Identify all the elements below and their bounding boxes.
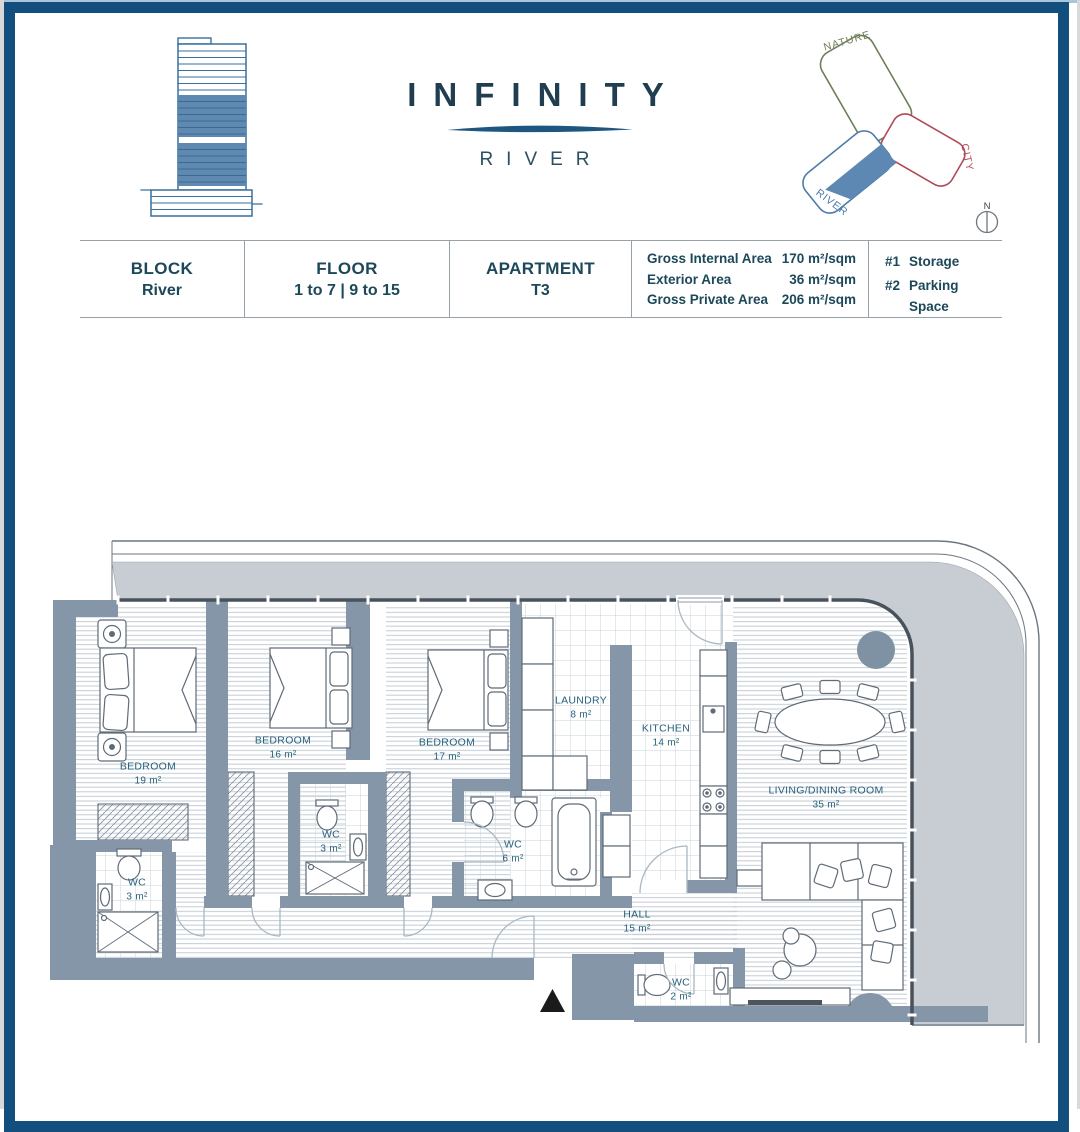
area-value: 206 m²/sqm: [782, 290, 856, 310]
apartment-cell: APARTMENT T3: [450, 241, 632, 318]
block-cell: BLOCK River: [80, 241, 245, 318]
extra-row: #2 Parking Space: [885, 276, 1002, 318]
area-label: Gross Private Area: [647, 290, 768, 310]
floor-value: 1 to 7 | 9 to 15: [294, 282, 400, 300]
apartment-value: T3: [531, 282, 550, 300]
room-label-wc-2: WC2 m²: [670, 977, 691, 1004]
extra-label: Parking Space: [909, 276, 1002, 318]
compass-icon: N: [977, 201, 998, 233]
site-plan-diagram: NATURE CITY RIVER N: [798, 29, 998, 233]
structural-column: [857, 631, 895, 669]
room-label-living-dining: LIVING/DINING ROOM35 m²: [768, 785, 883, 812]
extra-number: #1: [885, 252, 900, 273]
room-label-laundry: LAUNDRY8 m²: [555, 695, 607, 722]
brand-title: INFINITY: [407, 76, 681, 114]
building-icon: [141, 38, 262, 216]
extra-number: #2: [885, 276, 900, 318]
room-label-bedroom-16: BEDROOM16 m²: [255, 735, 311, 762]
room-label-bedroom-17: BEDROOM17 m²: [419, 737, 475, 764]
extras-cell: #1 Storage #2 Parking Space: [869, 241, 1002, 318]
room-label-wc-6: WC6 m²: [502, 839, 523, 866]
room-label-wc-left: WC3 m²: [126, 877, 147, 904]
room-label-bedroom-19: BEDROOM19 m²: [120, 761, 176, 788]
extra-label: Storage: [909, 252, 959, 273]
svg-text:N: N: [984, 201, 991, 212]
area-label: Exterior Area: [647, 270, 731, 290]
entrance-arrow-icon: [540, 989, 565, 1012]
area-row: Gross Private Area 206 m²/sqm: [632, 290, 868, 310]
room-label-hall: HALL15 m²: [623, 909, 650, 936]
area-row: Gross Internal Area 170 m²/sqm: [632, 249, 868, 269]
floor-plan: [50, 541, 1039, 1043]
block-value: River: [142, 282, 182, 300]
brand-subtitle: RIVER: [479, 149, 602, 171]
info-table: BLOCK River FLOOR 1 to 7 | 9 to 15 APART…: [80, 240, 1002, 318]
areas-cell: Gross Internal Area 170 m²/sqm Exterior …: [632, 241, 869, 318]
terrace-door-opening: [676, 595, 724, 605]
block-label: BLOCK: [131, 259, 193, 279]
floor-cell: FLOOR 1 to 7 | 9 to 15: [245, 241, 450, 318]
logo-swoosh: [447, 126, 633, 133]
room-label-kitchen: KITCHEN14 m²: [642, 723, 690, 750]
room-label-wc-mid: WC3 m²: [320, 829, 341, 856]
area-row: Exterior Area 36 m²/sqm: [632, 270, 868, 290]
area-value: 36 m²/sqm: [789, 270, 856, 290]
area-label: Gross Internal Area: [647, 249, 772, 269]
extra-row: #1 Storage: [885, 252, 959, 273]
apartment-label: APARTMENT: [486, 259, 595, 279]
area-value: 170 m²/sqm: [782, 249, 856, 269]
floor-label: FLOOR: [316, 259, 378, 279]
